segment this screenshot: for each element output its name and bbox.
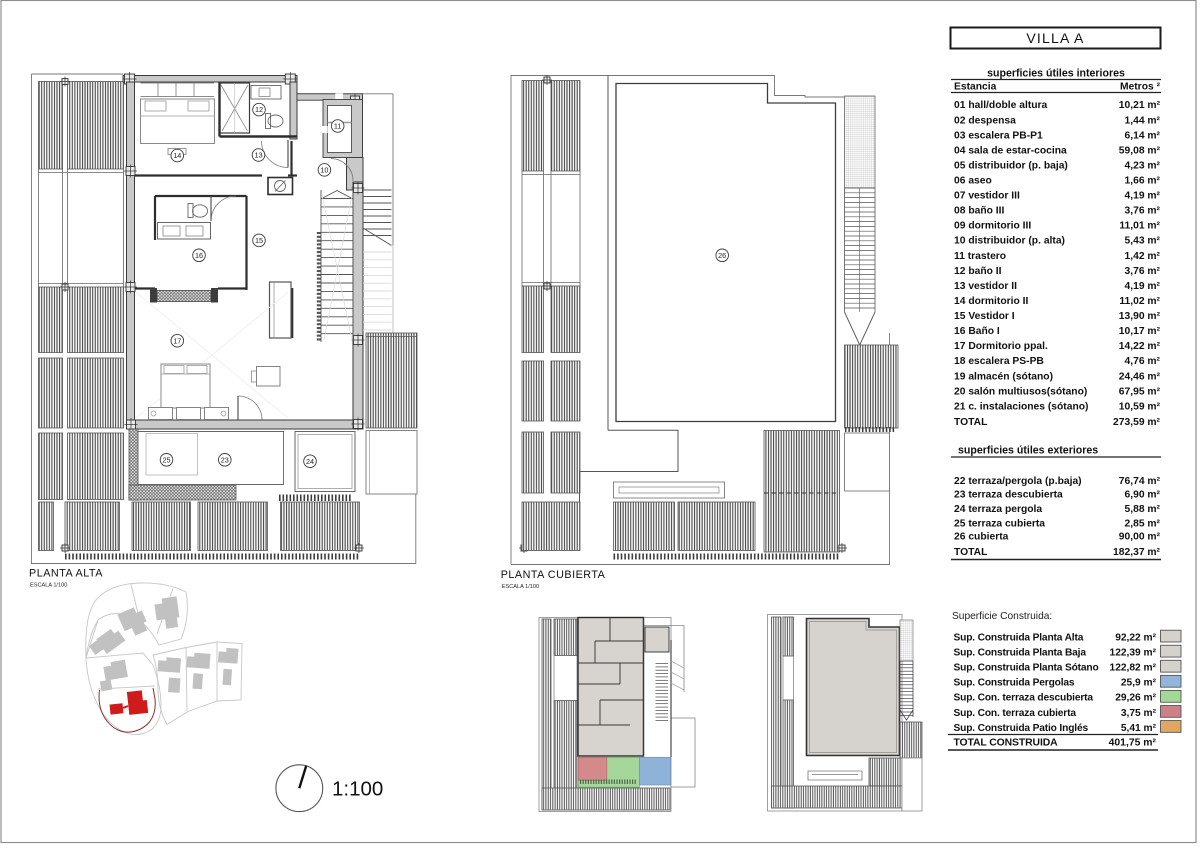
svg-text:11,01 m²: 11,01 m² <box>1119 221 1160 232</box>
svg-text:Estancia: Estancia <box>954 82 997 93</box>
svg-text:3,75 m²: 3,75 m² <box>1121 708 1157 719</box>
svg-text:13 vestidor II: 13 vestidor II <box>954 281 1017 292</box>
svg-text:4,19 m²: 4,19 m² <box>1125 281 1161 292</box>
svg-text:15 Vestidor I: 15 Vestidor I <box>954 311 1015 322</box>
svg-text:24,46 m²: 24,46 m² <box>1119 371 1161 382</box>
svg-text:10,59 m²: 10,59 m² <box>1119 401 1161 412</box>
svg-text:90,00 m²: 90,00 m² <box>1119 532 1161 543</box>
svg-text:25,9 m²: 25,9 m² <box>1121 678 1157 689</box>
svg-text:07 vestidor III: 07 vestidor III <box>954 191 1020 202</box>
svg-text:Sup. Construida Planta Baja: Sup. Construida Planta Baja <box>954 648 1087 659</box>
svg-text:11 trastero: 11 trastero <box>954 251 1006 262</box>
svg-text:4,23 m²: 4,23 m² <box>1125 160 1161 171</box>
svg-text:14 dormitorio II: 14 dormitorio II <box>954 296 1029 307</box>
svg-text:2,85 m²: 2,85 m² <box>1125 519 1161 530</box>
svg-text:13: 13 <box>254 151 262 160</box>
svg-text:4,19 m²: 4,19 m² <box>1125 191 1161 202</box>
svg-text:24 terraza pergola: 24 terraza pergola <box>954 504 1042 515</box>
svg-text:26: 26 <box>718 251 726 260</box>
svg-text:4,76 m²: 4,76 m² <box>1125 356 1161 367</box>
svg-text:29,26 m²: 29,26 m² <box>1115 693 1156 704</box>
svg-text:11: 11 <box>334 122 342 131</box>
svg-text:12: 12 <box>255 105 263 114</box>
svg-text:3,76 m²: 3,76 m² <box>1125 206 1161 217</box>
svg-text:Sup. Con. terraza descubierta: Sup. Con. terraza descubierta <box>954 693 1094 704</box>
svg-text:22 terraza/pergola (p.baja): 22 terraza/pergola (p.baja) <box>954 476 1082 487</box>
svg-text:PLANTA ALTA: PLANTA ALTA <box>29 568 103 580</box>
svg-text:19 almacén (sótano): 19 almacén (sótano) <box>954 371 1053 382</box>
svg-text:16 Baño I: 16 Baño I <box>954 326 1000 337</box>
svg-text:5,88 m²: 5,88 m² <box>1125 504 1161 515</box>
svg-text:ESCALA 1/100: ESCALA 1/100 <box>502 584 539 590</box>
svg-text:17: 17 <box>173 336 181 345</box>
svg-text:Sup. Con. terraza cubierta: Sup. Con. terraza cubierta <box>954 708 1077 719</box>
svg-text:1:100: 1:100 <box>332 778 383 801</box>
svg-text:12 baño II: 12 baño II <box>954 266 1002 277</box>
svg-text:09 dormitorio III: 09 dormitorio III <box>954 221 1031 232</box>
svg-text:ESCALA 1/100: ESCALA 1/100 <box>30 583 67 589</box>
svg-text:TOTAL CONSTRUIDA: TOTAL CONSTRUIDA <box>954 738 1059 749</box>
svg-text:5,41 m²: 5,41 m² <box>1121 723 1157 734</box>
svg-text:401,75 m²: 401,75 m² <box>1109 738 1157 749</box>
svg-text:1,44 m²: 1,44 m² <box>1125 115 1161 126</box>
svg-text:67,95 m²: 67,95 m² <box>1119 386 1161 397</box>
svg-text:03 escalera PB-P1: 03 escalera PB-P1 <box>954 130 1043 141</box>
svg-text:17 Dormitorio ppal.: 17 Dormitorio ppal. <box>954 341 1048 352</box>
svg-text:Sup. Construida Pergolas: Sup. Construida Pergolas <box>954 678 1075 689</box>
svg-text:10: 10 <box>320 166 328 175</box>
svg-text:10,21 m²: 10,21 m² <box>1119 100 1161 111</box>
svg-text:16: 16 <box>195 251 203 260</box>
svg-text:10,17 m²: 10,17 m² <box>1119 326 1161 337</box>
svg-text:15: 15 <box>255 236 263 245</box>
svg-text:Sup. Construida Patio Inglés: Sup. Construida Patio Inglés <box>954 723 1089 734</box>
svg-text:VILLA A: VILLA A <box>1026 30 1084 46</box>
svg-text:PLANTA CUBIERTA: PLANTA CUBIERTA <box>501 569 606 581</box>
svg-text:25: 25 <box>162 455 170 464</box>
svg-text:122,82 m²: 122,82 m² <box>1110 663 1157 674</box>
svg-text:76,74 m²: 76,74 m² <box>1119 476 1161 487</box>
svg-text:59,08 m²: 59,08 m² <box>1119 145 1161 156</box>
svg-text:14,22 m²: 14,22 m² <box>1119 341 1161 352</box>
svg-text:01 hall/doble altura: 01 hall/doble altura <box>954 100 1048 111</box>
svg-text:13,90 m²: 13,90 m² <box>1119 311 1161 322</box>
svg-text:superficies útiles exteriores: superficies útiles exteriores <box>958 445 1098 457</box>
svg-text:26 cubierta: 26 cubierta <box>954 532 1009 543</box>
svg-text:Superficie Construida:: Superficie Construida: <box>952 611 1052 622</box>
svg-text:273,59 m²: 273,59 m² <box>1113 417 1161 428</box>
svg-text:02 despensa: 02 despensa <box>954 115 1016 126</box>
svg-text:04 sala de estar-cocina: 04 sala de estar-cocina <box>954 145 1067 156</box>
svg-text:superficies útiles interiores: superficies útiles interiores <box>987 68 1125 80</box>
svg-text:5,43 m²: 5,43 m² <box>1125 236 1161 247</box>
svg-text:18 escalera PS-PB: 18 escalera PS-PB <box>954 356 1044 367</box>
svg-text:23 terraza descubierta: 23 terraza descubierta <box>954 490 1063 501</box>
svg-text:23: 23 <box>221 455 229 464</box>
svg-text:122,39 m²: 122,39 m² <box>1110 648 1157 659</box>
svg-text:24: 24 <box>306 457 314 466</box>
svg-text:20 salón multiusos(sótano): 20 salón multiusos(sótano) <box>954 386 1087 397</box>
svg-text:Metros ²: Metros ² <box>1120 82 1161 93</box>
svg-text:Sup. Construida Planta Alta: Sup. Construida Planta Alta <box>954 633 1084 644</box>
svg-text:21 c. instalaciones (sótano): 21 c. instalaciones (sótano) <box>954 401 1088 412</box>
svg-text:TOTAL: TOTAL <box>954 417 987 428</box>
svg-text:14: 14 <box>173 151 181 160</box>
svg-text:6,14 m²: 6,14 m² <box>1125 130 1161 141</box>
svg-text:182,37 m²: 182,37 m² <box>1113 547 1161 558</box>
svg-text:TOTAL: TOTAL <box>954 547 987 558</box>
svg-text:11,02 m²: 11,02 m² <box>1119 296 1160 307</box>
svg-text:10 distribuidor (p. alta): 10 distribuidor (p. alta) <box>954 236 1065 247</box>
svg-text:92,22 m²: 92,22 m² <box>1115 633 1156 644</box>
svg-text:1,66 m²: 1,66 m² <box>1125 176 1161 187</box>
svg-text:25 terraza cubierta: 25 terraza cubierta <box>954 519 1045 530</box>
svg-text:06 aseo: 06 aseo <box>954 176 992 187</box>
svg-text:6,90 m²: 6,90 m² <box>1125 490 1161 501</box>
svg-text:1,42 m²: 1,42 m² <box>1125 251 1161 262</box>
svg-text:05 distribuidor (p. baja): 05 distribuidor (p. baja) <box>954 160 1068 171</box>
svg-text:Sup. Construida Planta Sótano: Sup. Construida Planta Sótano <box>954 663 1099 674</box>
svg-text:3,76 m²: 3,76 m² <box>1125 266 1161 277</box>
svg-text:08 baño III: 08 baño III <box>954 206 1004 217</box>
